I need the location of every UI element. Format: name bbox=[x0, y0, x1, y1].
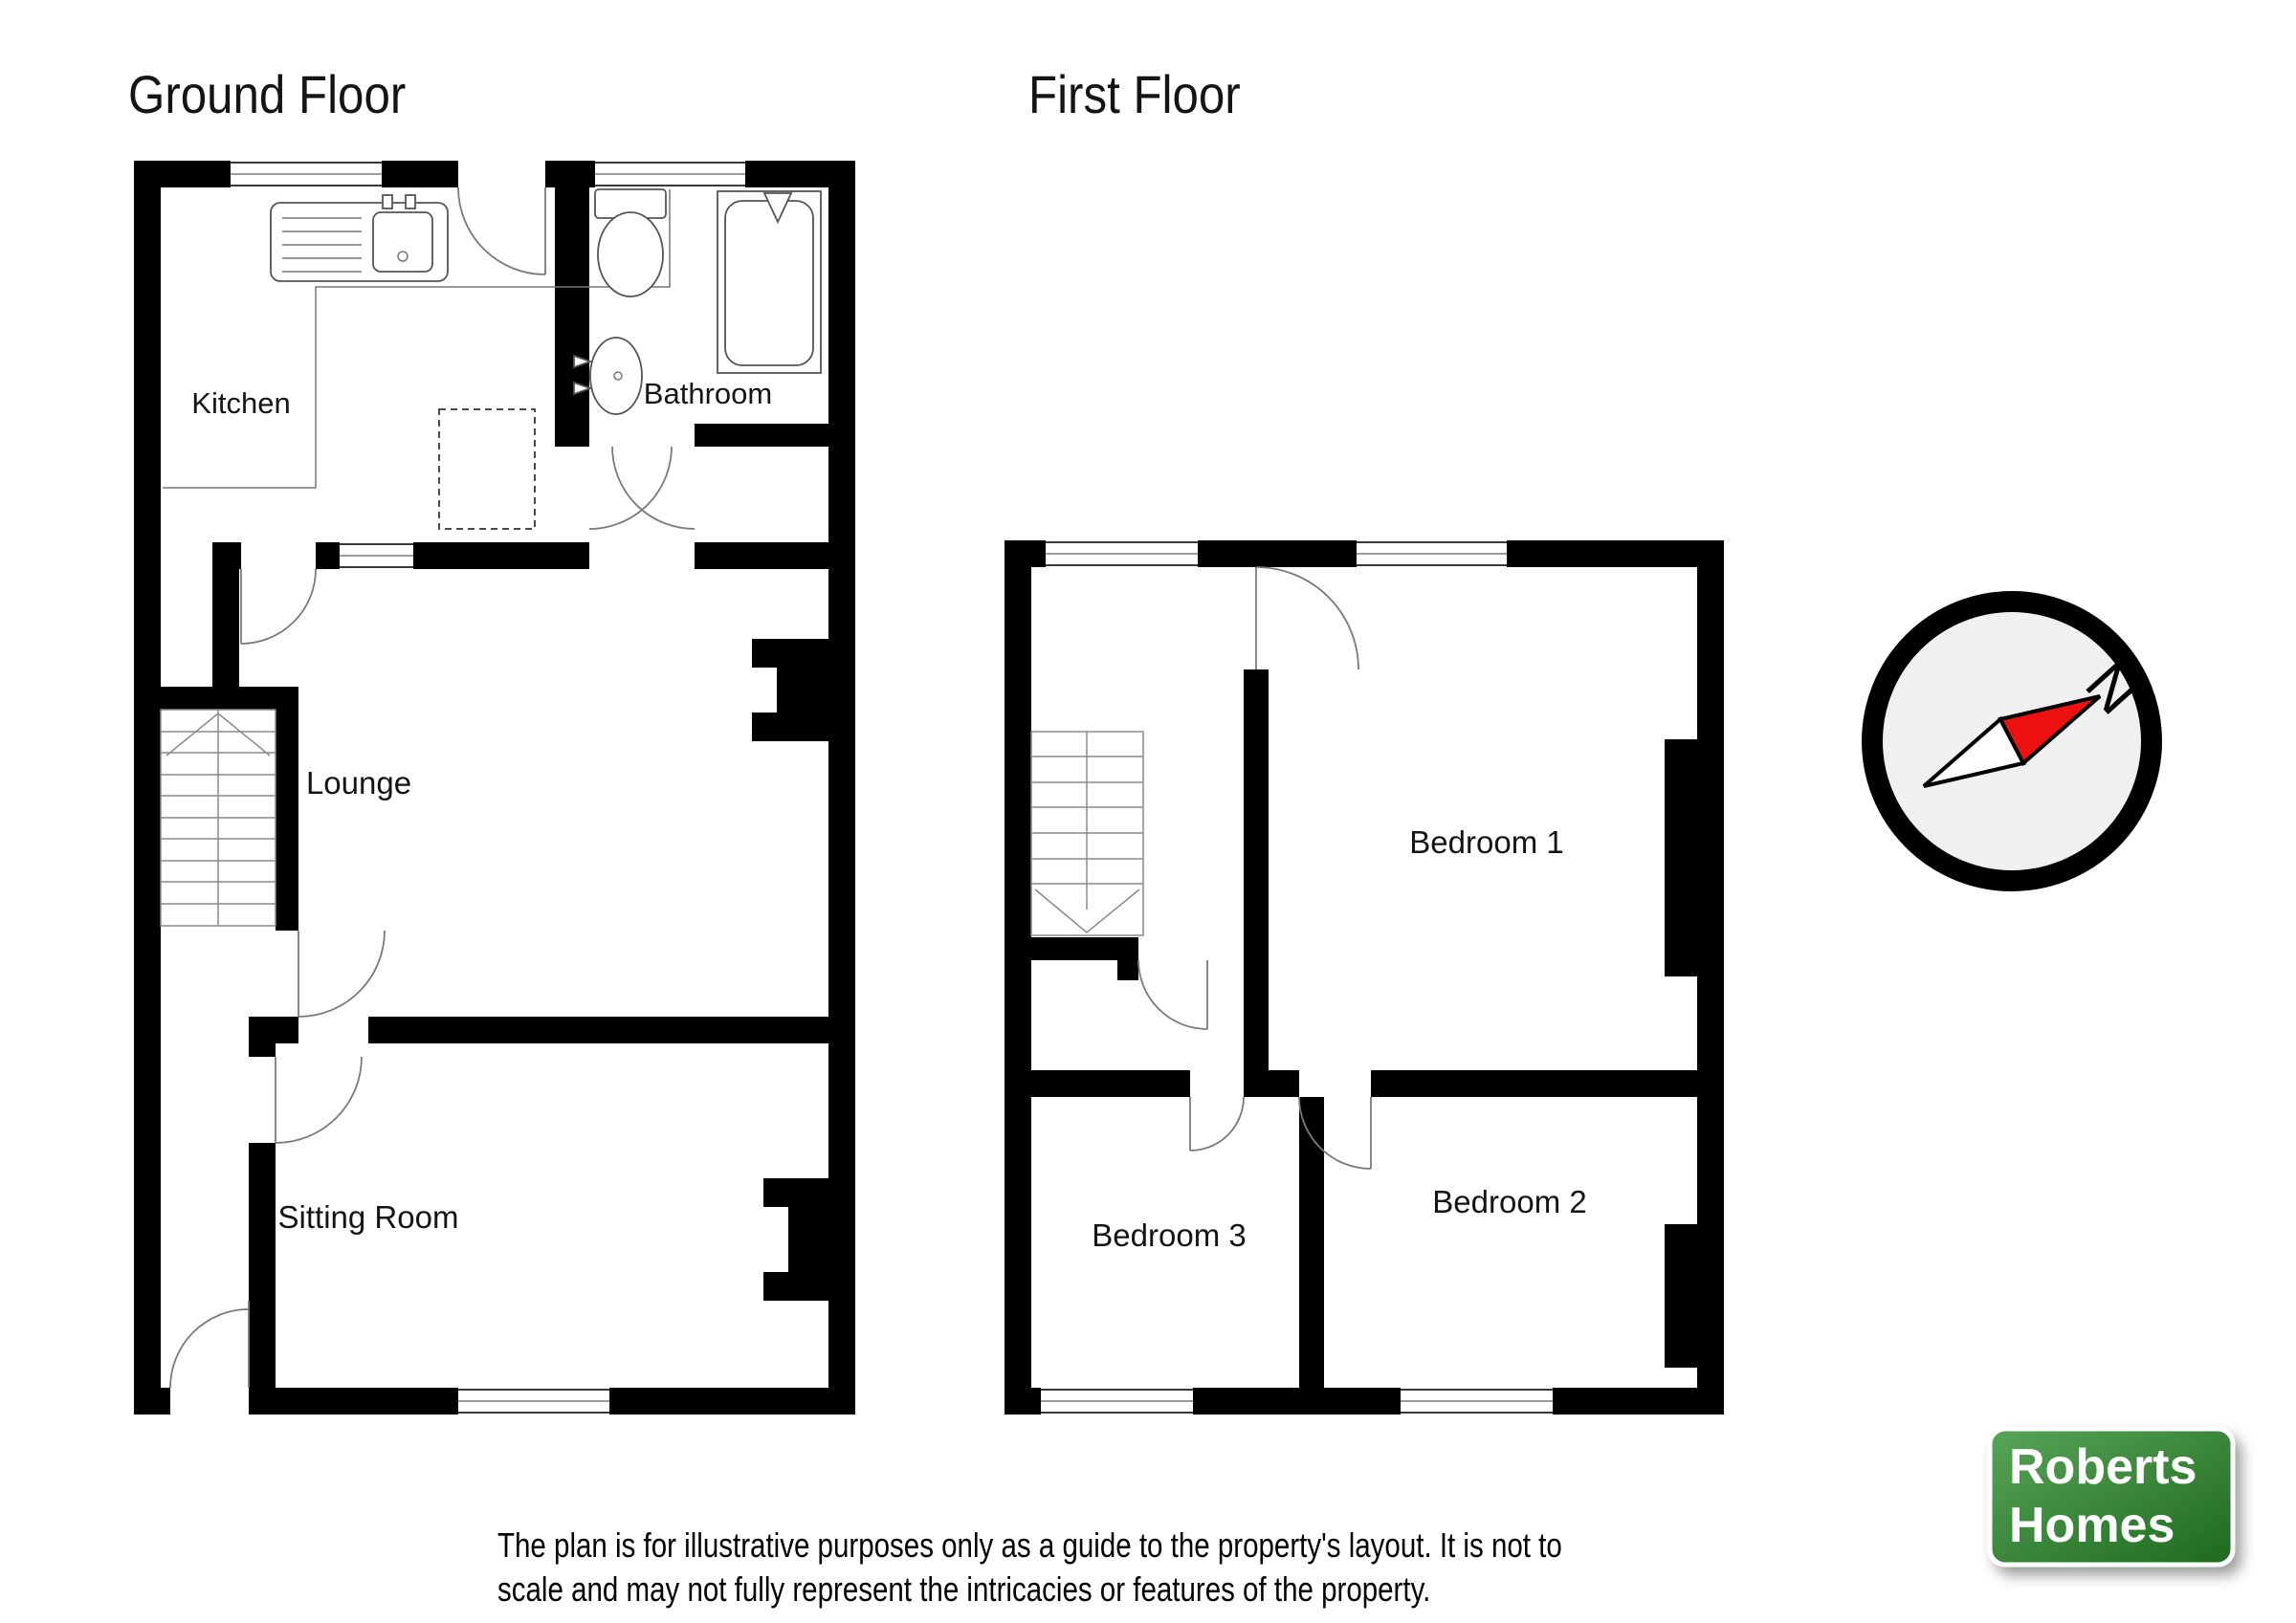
bathroom-label: Bathroom bbox=[644, 377, 772, 410]
sitting-room-window bbox=[458, 1388, 609, 1415]
bedroom2-label: Bedroom 2 bbox=[1432, 1184, 1586, 1219]
bedroom2-window bbox=[1401, 1388, 1553, 1415]
bedroom3-door bbox=[1190, 1097, 1244, 1151]
lounge-internal-window bbox=[340, 542, 413, 569]
stairs-window bbox=[1046, 540, 1198, 567]
floorplan-canvas: Ground Floor bbox=[0, 0, 2296, 1623]
logo-line2: Homes bbox=[2009, 1498, 2175, 1553]
fireplace-sitting-room-icon bbox=[763, 1178, 828, 1301]
sitting-room-label: Sitting Room bbox=[278, 1199, 459, 1235]
disclaimer-line1: The plan is for illustrative purposes on… bbox=[497, 1525, 1562, 1564]
bedroom3-label: Bedroom 3 bbox=[1092, 1217, 1246, 1253]
toilet-icon bbox=[595, 189, 666, 296]
bedroom3-window bbox=[1041, 1388, 1193, 1415]
chimney-breast-bedroom2-icon bbox=[1665, 1224, 1697, 1368]
ground-floor-title: Ground Floor bbox=[128, 65, 406, 125]
bathroom-door bbox=[589, 447, 695, 529]
first-floor-title: First Floor bbox=[1028, 65, 1241, 125]
disclaimer: The plan is for illustrative purposes on… bbox=[497, 1525, 1562, 1608]
lounge-hall-door bbox=[298, 931, 385, 1017]
staircase-down-icon bbox=[1031, 732, 1143, 935]
first-floor-walls bbox=[1004, 540, 1724, 1415]
kitchen-sink-icon bbox=[271, 195, 448, 281]
chimney-breast-bedroom1-icon bbox=[1665, 739, 1697, 976]
sitting-room-door bbox=[276, 1057, 362, 1143]
front-door bbox=[170, 1301, 249, 1388]
first-floor-plan: First Floor bbox=[1004, 65, 1724, 1415]
bathroom-window bbox=[595, 161, 745, 187]
bath-icon bbox=[717, 191, 821, 373]
agency-logo: Roberts Homes bbox=[1990, 1429, 2233, 1565]
bedroom1-door bbox=[1256, 567, 1358, 669]
kitchen-lounge-door bbox=[241, 569, 316, 644]
lounge-label: Lounge bbox=[306, 765, 411, 801]
kitchen-door bbox=[458, 187, 545, 274]
fireplace-lounge-icon bbox=[752, 639, 828, 741]
ground-floor-plan: Ground Floor bbox=[128, 65, 855, 1415]
compass-rose: N bbox=[1872, 602, 2152, 881]
bedroom1-label: Bedroom 1 bbox=[1409, 824, 1563, 860]
landing-door bbox=[1138, 960, 1207, 1029]
floorplan-page: Ground Floor bbox=[0, 0, 2296, 1623]
staircase-up-icon bbox=[161, 710, 276, 926]
logo-line1: Roberts bbox=[2009, 1439, 2197, 1495]
kitchen-window bbox=[231, 161, 382, 187]
kitchen-label: Kitchen bbox=[191, 386, 290, 420]
bedroom1-window bbox=[1357, 540, 1507, 567]
disclaimer-line2: scale and may not fully represent the in… bbox=[497, 1569, 1430, 1608]
appliance-space-icon bbox=[439, 409, 535, 529]
